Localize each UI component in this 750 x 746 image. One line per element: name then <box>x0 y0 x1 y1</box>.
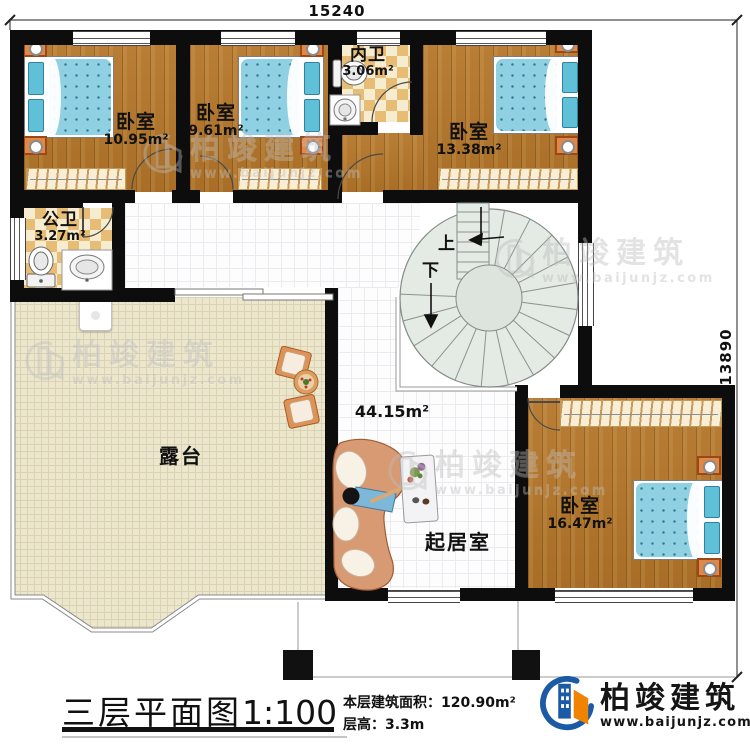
pillows <box>25 57 47 137</box>
title-underline <box>62 727 334 732</box>
room-name: 卧室 <box>429 122 509 143</box>
room-name: 起居室 <box>425 530 491 554</box>
nightstand <box>555 136 579 155</box>
window <box>357 31 400 46</box>
closet <box>26 168 126 190</box>
room-area: 3.27m² <box>28 230 92 245</box>
brand-block: 柏竣建筑 www.baijunjz.com <box>536 676 750 736</box>
floor-stats: 本层建筑面积：120.90m² 层高：3.3m <box>343 693 516 736</box>
window <box>388 590 460 603</box>
dimension-right: 13890 <box>717 317 737 397</box>
room-label-bedroom-tl: 卧室 10.95m² <box>96 112 176 149</box>
stair-down-label: 下 <box>422 256 439 281</box>
floor-height-line: 层高：3.3m <box>343 715 516 737</box>
nightstand <box>697 456 721 475</box>
brand-url: www.baijunjz.com <box>600 715 750 730</box>
room-name: 内卫 <box>336 46 400 65</box>
room-name: 卧室 <box>96 112 176 133</box>
room-label-bath-public: 公卫 3.27m² <box>28 211 92 245</box>
room-label-terrace: 露台 <box>141 440 221 469</box>
room-area: 44.15m² <box>355 402 429 421</box>
window <box>221 31 295 46</box>
brand-name: 柏竣建筑 <box>600 682 750 715</box>
mattress <box>636 483 699 557</box>
window <box>73 31 150 46</box>
pillows <box>301 57 323 137</box>
room-name: 卧室 <box>540 496 620 517</box>
closet <box>238 168 322 190</box>
nightstand <box>23 136 47 155</box>
room-name: 卧室 <box>176 103 256 124</box>
washing-machine <box>79 298 112 331</box>
nightstand <box>697 558 721 577</box>
hallway-floor <box>125 203 420 287</box>
porch-columns <box>283 601 735 680</box>
floor-area-line: 本层建筑面积：120.90m² <box>343 693 516 715</box>
window <box>10 218 26 280</box>
room-label-bedroom-tr: 卧室 13.38m² <box>429 122 509 159</box>
title-underline-2 <box>62 736 347 738</box>
room-name: 公卫 <box>28 211 92 230</box>
bedroom-tr-alcove-floor <box>342 133 423 192</box>
stair-zone-floor2 <box>398 287 422 390</box>
room-label-living: 起居室 <box>413 526 503 555</box>
stair-up-label: 上 <box>438 229 455 254</box>
nightstand <box>300 136 324 155</box>
dimension-top: 15240 <box>295 2 379 20</box>
room-area: 13.38m² <box>429 143 509 159</box>
floor-plan-canvas: 柏竣建筑 www.baijunjz.com 柏竣建筑 www.baijunjz.… <box>0 0 750 746</box>
room-label-bath-inner: 内卫 3.06m² <box>336 46 400 80</box>
room-area: 3.06m² <box>336 65 400 80</box>
window <box>456 31 546 46</box>
room-label-bedroom-tm: 卧室 9.61m² <box>176 103 256 140</box>
pillows <box>701 481 723 559</box>
bed <box>633 480 724 560</box>
room-area: 9.61m² <box>176 124 256 140</box>
living-room-area: 44.15m² <box>347 402 437 421</box>
closet <box>560 400 722 427</box>
room-area: 10.95m² <box>96 133 176 149</box>
room-name: 露台 <box>159 444 203 468</box>
closet <box>438 168 578 190</box>
room-area: 16.47m² <box>540 517 620 533</box>
window <box>555 590 693 603</box>
mattress <box>496 59 557 131</box>
room-label-bedroom-br: 卧室 16.47m² <box>540 496 620 533</box>
brand-logo-icon <box>536 676 594 736</box>
window <box>578 243 594 326</box>
